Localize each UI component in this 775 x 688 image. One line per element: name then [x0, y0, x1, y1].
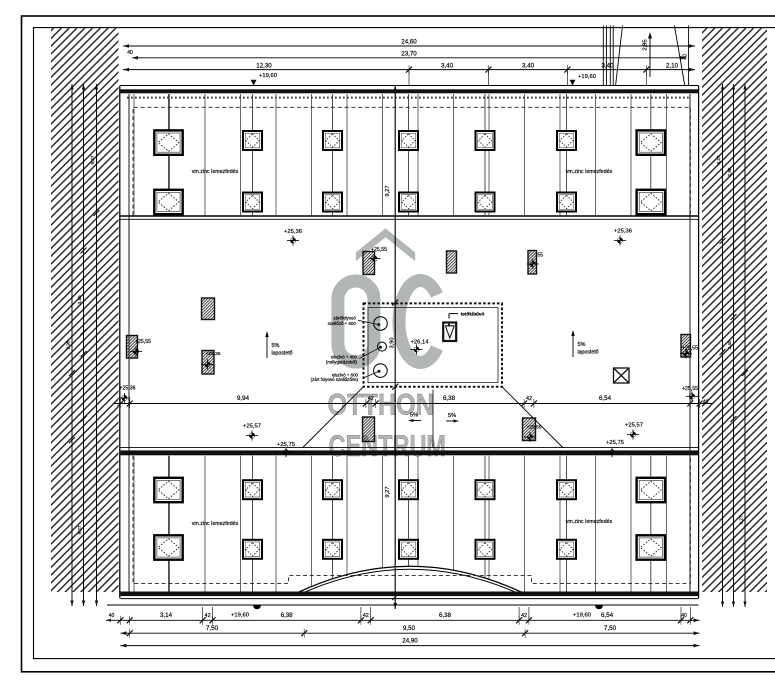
svg-text:tetőkibúvó: tetőkibúvó: [461, 311, 485, 316]
svg-text:OTTHON: OTTHON: [328, 389, 435, 422]
svg-text:lapostető: lapostető: [272, 351, 293, 357]
svg-text:9,27: 9,27: [716, 155, 721, 164]
svg-text:vm.zinc lemezfedés: vm.zinc lemezfedés: [192, 169, 239, 175]
svg-text:+19,60: +19,60: [231, 613, 249, 619]
svg-text:zárófolyosó: zárófolyosó: [333, 316, 356, 321]
svg-text:12,30: 12,30: [256, 62, 272, 69]
svg-text:24,90: 24,90: [402, 637, 418, 644]
svg-text:40: 40: [683, 54, 689, 60]
svg-text:(zárt folyosó szellőzőire): (zárt folyosó szellőzőire): [311, 377, 359, 382]
svg-text:42: 42: [368, 396, 374, 402]
svg-text:9,94: 9,94: [237, 395, 250, 402]
svg-text:9,27: 9,27: [385, 486, 391, 497]
svg-text:+25,55: +25,55: [682, 346, 698, 352]
svg-text:+19,60: +19,60: [259, 73, 277, 79]
svg-text:5%: 5%: [410, 413, 418, 419]
svg-text:vm.zinc lemezfedés: vm.zinc lemezfedés: [566, 169, 613, 175]
svg-text:9,27: 9,27: [385, 185, 391, 196]
svg-text:40: 40: [703, 400, 709, 406]
svg-text:40: 40: [109, 613, 115, 619]
svg-text:42: 42: [526, 396, 532, 402]
svg-text:+26,14: +26,14: [411, 339, 430, 345]
svg-text:3,14: 3,14: [160, 612, 173, 619]
svg-text:6,38: 6,38: [281, 612, 294, 619]
svg-text:3,40: 3,40: [522, 62, 535, 69]
svg-text:szellőző + 600: szellőző + 600: [328, 321, 357, 326]
svg-text:+25,57: +25,57: [243, 424, 261, 430]
svg-text:+25,36: +25,36: [614, 229, 632, 235]
svg-text:6,54: 6,54: [601, 612, 614, 619]
svg-text:3,40: 3,40: [441, 62, 454, 69]
svg-text:6,54: 6,54: [599, 395, 612, 402]
svg-text:40: 40: [127, 50, 133, 56]
svg-text:2,95: 2,95: [727, 167, 732, 176]
svg-text:+25,36: +25,36: [284, 229, 302, 235]
svg-text:9,27: 9,27: [738, 515, 743, 524]
svg-text:7,50: 7,50: [206, 625, 219, 632]
svg-text:+25,55: +25,55: [135, 339, 151, 345]
svg-text:5%: 5%: [272, 343, 280, 349]
svg-text:40: 40: [681, 613, 687, 619]
svg-text:7,50: 7,50: [604, 625, 617, 632]
svg-text:(mélygarázsból): (mélygarázsból): [326, 360, 358, 365]
svg-text:6,38: 6,38: [443, 395, 456, 402]
svg-text:42: 42: [205, 613, 211, 619]
svg-text:+25,55: +25,55: [527, 425, 542, 431]
svg-text:+19,60: +19,60: [578, 74, 596, 80]
svg-text:+25,57: +25,57: [625, 423, 643, 429]
svg-text:2,95: 2,95: [643, 39, 649, 50]
svg-text:42: 42: [363, 613, 369, 619]
svg-text:9,27: 9,27: [77, 525, 82, 534]
svg-text:9,27: 9,27: [90, 155, 95, 164]
svg-text:42: 42: [521, 613, 527, 619]
svg-text:55: 55: [538, 253, 544, 259]
svg-text:CENTRUM: CENTRUM: [329, 430, 447, 463]
svg-text:lapostető: lapostető: [578, 350, 599, 356]
svg-text:2,95: 2,95: [66, 340, 71, 349]
svg-text:+25,55: +25,55: [682, 386, 698, 392]
svg-text:9,50: 9,50: [403, 625, 416, 632]
svg-text:vm.zinc lemezfedés: vm.zinc lemezfedés: [192, 521, 239, 527]
svg-text:+25,55: +25,55: [371, 247, 387, 253]
svg-text:6,38: 6,38: [439, 612, 452, 619]
svg-text:23,70: 23,70: [401, 50, 417, 57]
svg-text:3,40: 3,40: [77, 295, 82, 304]
svg-text:+25,36: +25,36: [206, 351, 221, 357]
svg-text:+19,60: +19,60: [573, 613, 591, 619]
svg-text:5%: 5%: [578, 342, 586, 348]
svg-text:+25,75: +25,75: [606, 440, 624, 446]
svg-text:3,40: 3,40: [727, 340, 732, 349]
svg-text:3,90: 3,90: [389, 338, 395, 349]
svg-text:vm.zinc lemezfedés: vm.zinc lemezfedés: [566, 519, 613, 525]
svg-text:5%: 5%: [448, 413, 456, 419]
svg-text:2,10: 2,10: [666, 62, 679, 69]
svg-text:24,60: 24,60: [401, 39, 417, 46]
svg-text:+25,75: +25,75: [277, 442, 295, 448]
svg-text:+25,36: +25,36: [120, 386, 136, 392]
